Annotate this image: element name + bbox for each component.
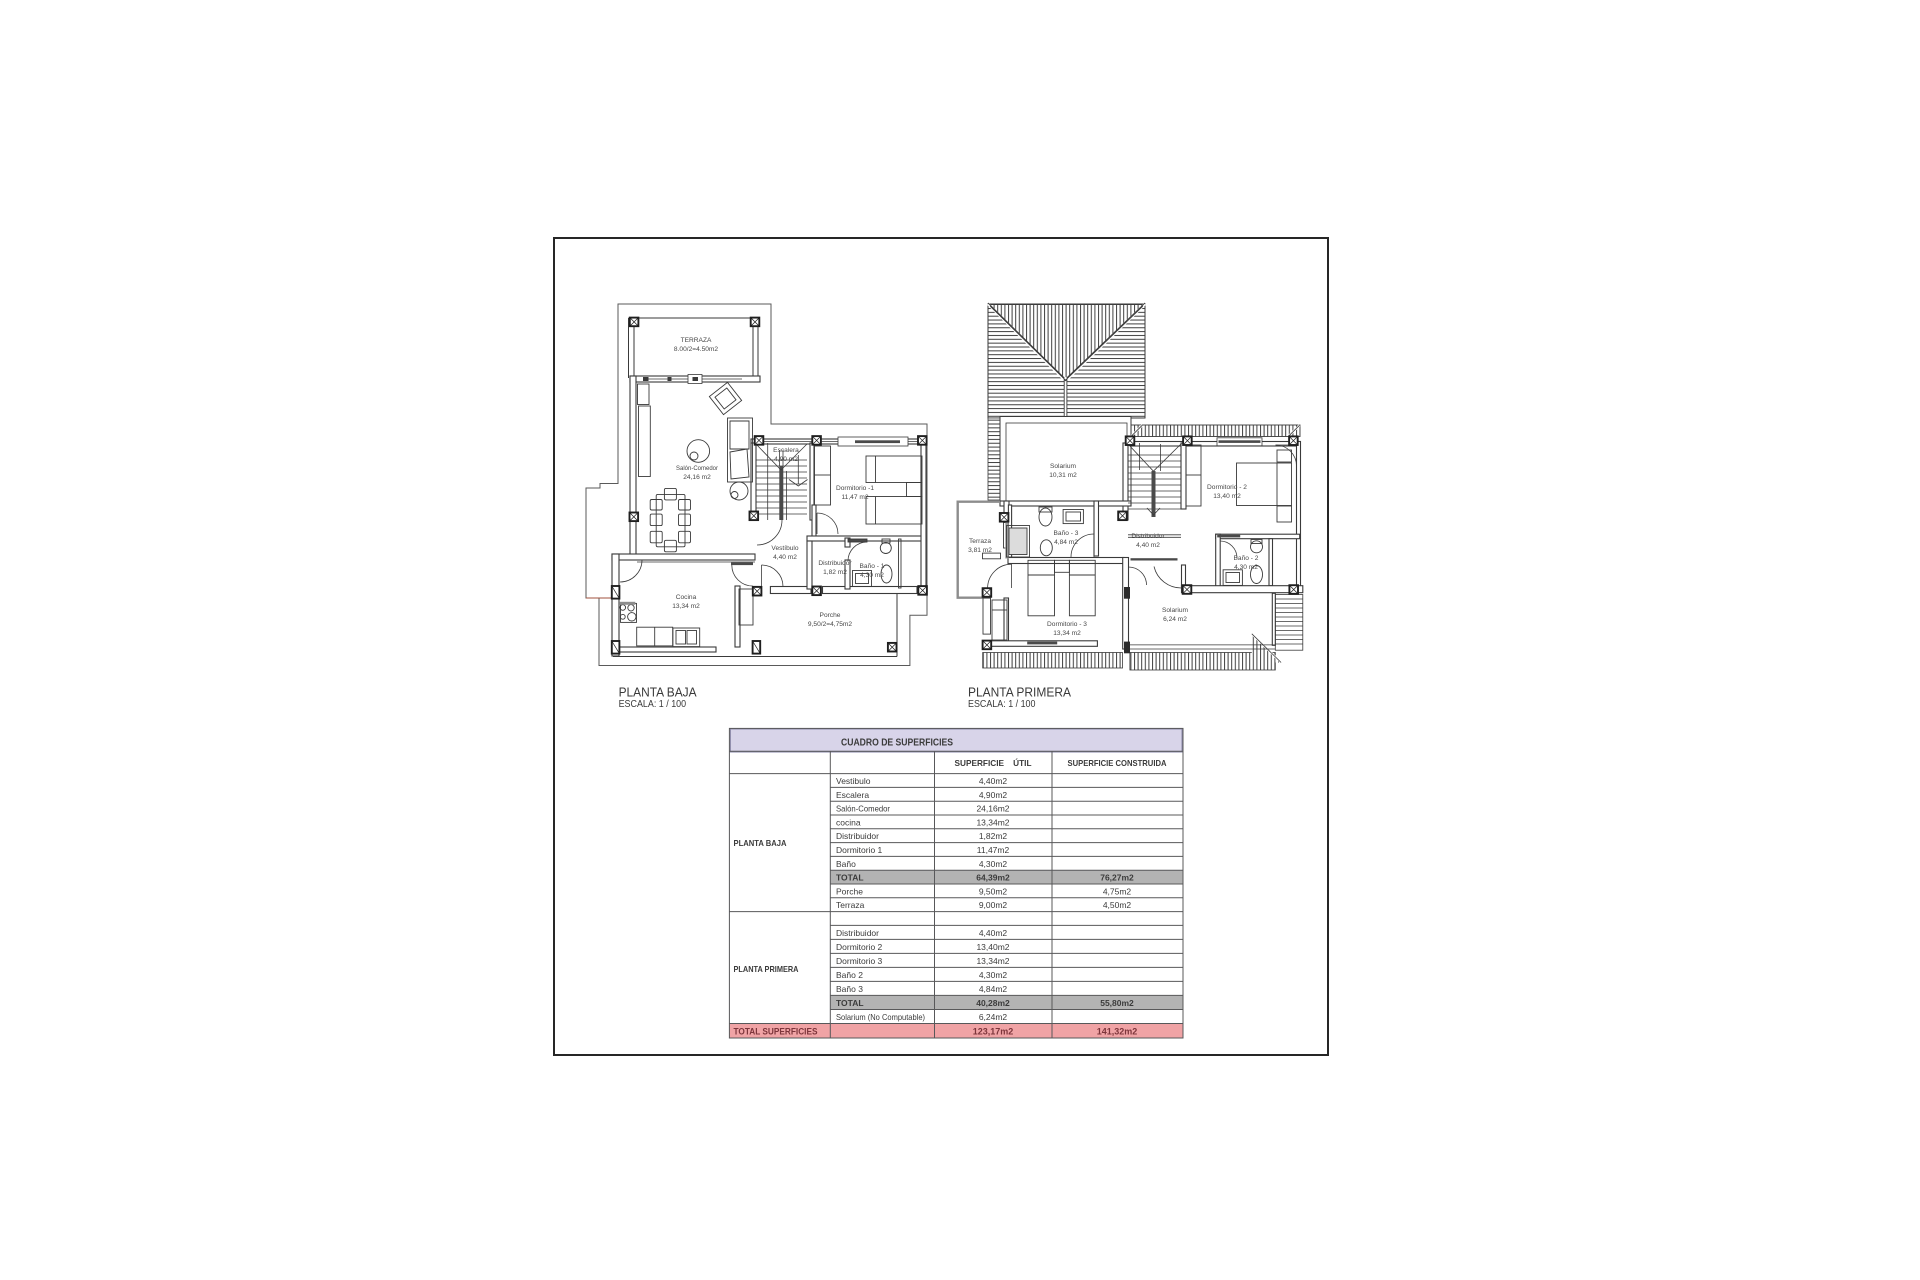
svg-text:TOTAL SUPERFICIES: TOTAL SUPERFICIES <box>734 1027 818 1037</box>
svg-text:Vestibulo: Vestibulo <box>836 776 871 786</box>
svg-text:4,84m2: 4,84m2 <box>979 984 1008 994</box>
svg-text:4,30 m2: 4,30 m2 <box>860 572 884 579</box>
svg-text:Dormitorio -1: Dormitorio -1 <box>836 485 874 492</box>
svg-text:3,81 m2: 3,81 m2 <box>968 547 992 554</box>
svg-text:9,50/2=4,75m2: 9,50/2=4,75m2 <box>808 621 853 628</box>
svg-text:PLANTA PRIMERA: PLANTA PRIMERA <box>734 964 799 974</box>
svg-text:Solarium: Solarium <box>1050 463 1077 470</box>
svg-text:4,40m2: 4,40m2 <box>979 776 1008 786</box>
svg-text:Porche: Porche <box>820 612 841 619</box>
svg-text:Dormitorio - 3: Dormitorio - 3 <box>1047 621 1087 628</box>
svg-text:Cocina: Cocina <box>676 594 697 601</box>
svg-text:1,82m2: 1,82m2 <box>979 831 1008 841</box>
svg-text:Terraza: Terraza <box>969 538 991 545</box>
svg-text:4,30m2: 4,30m2 <box>979 859 1008 869</box>
svg-text:SUPERFICIE CONSTRUIDA: SUPERFICIE CONSTRUIDA <box>1068 758 1167 768</box>
svg-text:11,47m2: 11,47m2 <box>977 845 1010 855</box>
svg-text:Porche: Porche <box>836 886 863 896</box>
svg-text:13,40 m2: 13,40 m2 <box>1213 493 1241 500</box>
svg-text:Dormitorio 1: Dormitorio 1 <box>836 845 883 855</box>
svg-text:13,34m2: 13,34m2 <box>976 956 1009 966</box>
svg-text:13,40m2: 13,40m2 <box>976 942 1009 952</box>
svg-text:13,34 m2: 13,34 m2 <box>672 603 700 610</box>
svg-text:40,28m2: 40,28m2 <box>976 998 1010 1008</box>
svg-text:Solarium: Solarium <box>1162 607 1189 614</box>
svg-text:Solarium (No Computable): Solarium (No Computable) <box>836 1012 925 1022</box>
svg-text:CUADRO DE SUPERFICIES: CUADRO DE SUPERFICIES <box>841 738 953 749</box>
svg-text:6,24m2: 6,24m2 <box>979 1012 1008 1022</box>
svg-text:141,32m2: 141,32m2 <box>1097 1027 1138 1037</box>
svg-text:Distribuidor: Distribuidor <box>836 831 879 841</box>
svg-text:PLANTA BAJA: PLANTA BAJA <box>619 685 697 700</box>
svg-text:Distribuidor: Distribuidor <box>836 928 879 938</box>
svg-text:Dormitorio 3: Dormitorio 3 <box>836 956 883 966</box>
svg-text:24,16m2: 24,16m2 <box>976 804 1009 814</box>
svg-text:4,30 m2: 4,30 m2 <box>1234 564 1258 571</box>
svg-text:4,40 m2: 4,40 m2 <box>773 554 797 561</box>
svg-text:4,90m2: 4,90m2 <box>979 790 1008 800</box>
svg-text:Terraza: Terraza <box>836 900 865 910</box>
svg-text:Distribuidor: Distribuidor <box>818 560 852 567</box>
svg-text:Baño 2: Baño 2 <box>836 970 863 980</box>
svg-text:6,24 m2: 6,24 m2 <box>1163 616 1187 623</box>
svg-text:8.00/2=4.50m2: 8.00/2=4.50m2 <box>674 346 719 353</box>
svg-text:PLANTA PRIMERA: PLANTA PRIMERA <box>968 685 1071 700</box>
svg-text:ESCALA: 1 / 100: ESCALA: 1 / 100 <box>968 699 1036 710</box>
svg-text:11,47 m2: 11,47 m2 <box>841 494 868 501</box>
svg-text:Salón-Comedor: Salón-Comedor <box>676 465 719 472</box>
svg-text:Baño: Baño <box>836 859 856 869</box>
svg-text:4,75m2: 4,75m2 <box>1103 886 1132 896</box>
svg-text:Baño - 3: Baño - 3 <box>1054 530 1079 537</box>
svg-text:64,39m2: 64,39m2 <box>976 873 1010 883</box>
svg-text:4,90 m2: 4,90 m2 <box>774 456 798 463</box>
svg-text:13,34m2: 13,34m2 <box>976 817 1009 827</box>
svg-text:4,30m2: 4,30m2 <box>979 970 1008 980</box>
svg-text:TERRAZA: TERRAZA <box>681 337 712 344</box>
svg-text:Dormitorio 2: Dormitorio 2 <box>836 942 883 952</box>
svg-text:9,50m2: 9,50m2 <box>979 886 1008 896</box>
svg-text:4,50m2: 4,50m2 <box>1103 900 1132 910</box>
svg-text:Salón-Comedor: Salón-Comedor <box>836 804 890 814</box>
svg-text:24,16 m2: 24,16 m2 <box>683 474 711 481</box>
svg-text:Escalera: Escalera <box>773 447 799 454</box>
svg-text:TOTAL: TOTAL <box>836 873 864 883</box>
svg-text:SUPERFICIE ÚTIL: SUPERFICIE ÚTIL <box>955 757 1032 768</box>
svg-text:Distribuidor: Distribuidor <box>1131 533 1165 540</box>
svg-text:13,34 m2: 13,34 m2 <box>1053 630 1081 637</box>
svg-text:PLANTA BAJA: PLANTA BAJA <box>734 838 787 848</box>
svg-text:TOTAL: TOTAL <box>836 998 864 1008</box>
svg-text:Baño - 1: Baño - 1 <box>860 563 885 570</box>
svg-text:1,82 m2: 1,82 m2 <box>823 569 847 576</box>
svg-text:76,27m2: 76,27m2 <box>1100 873 1134 883</box>
svg-text:Baño - 2: Baño - 2 <box>1234 555 1259 562</box>
svg-text:4,40 m2: 4,40 m2 <box>1136 542 1160 549</box>
svg-text:10,31 m2: 10,31 m2 <box>1049 472 1077 479</box>
svg-text:cocina: cocina <box>836 817 861 827</box>
svg-text:4,84 m2: 4,84 m2 <box>1054 539 1078 546</box>
svg-text:123,17m2: 123,17m2 <box>973 1027 1014 1037</box>
svg-text:ESCALA: 1 / 100: ESCALA: 1 / 100 <box>619 699 687 710</box>
svg-text:Baño 3: Baño 3 <box>836 984 863 994</box>
svg-text:Dormitorio - 2: Dormitorio - 2 <box>1207 484 1247 491</box>
svg-text:Vestíbulo: Vestíbulo <box>771 545 798 552</box>
svg-text:9,00m2: 9,00m2 <box>979 900 1008 910</box>
svg-text:4,40m2: 4,40m2 <box>979 928 1008 938</box>
svg-text:55,80m2: 55,80m2 <box>1100 998 1134 1008</box>
svg-text:Escalera: Escalera <box>836 790 869 800</box>
